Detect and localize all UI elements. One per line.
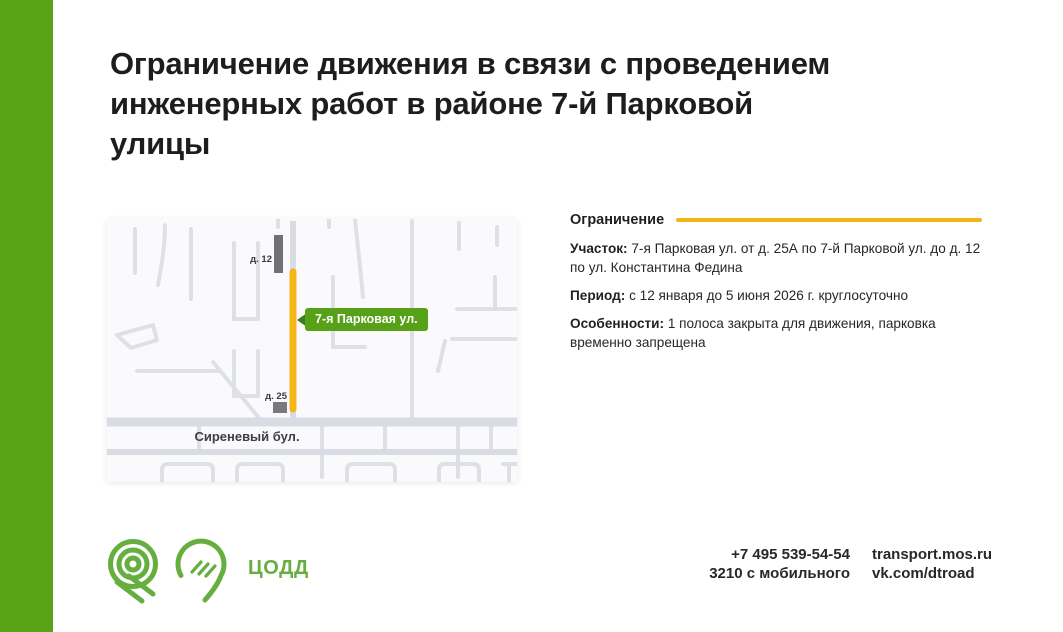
info-heading: Ограничение [570,212,664,228]
info-row-features-label: Особенности: [570,316,664,331]
info-heading-row: Ограничение [570,212,982,228]
infographic-poster: Ограничение движения в связи с проведени… [0,0,1063,632]
street-callout: 7-я Парковая ул. [297,308,428,331]
building-12-label: д. 12 [250,254,272,265]
org-name-label: ЦОДД [248,557,309,580]
social-text: vk.com/dtroad [872,564,992,583]
street-callout-label: 7-я Парковая ул. [305,308,428,331]
title-line-3: улицы [110,124,990,164]
contact-links: transport.mos.ru vk.com/dtroad [872,545,992,583]
boulevard-label: Сиреневый бул. [194,429,299,444]
map-graphic: д. 12 д. 25 Сиреневый бул. [107,219,517,482]
title-line-2: инженерных работ в районе 7-й Парковой [110,84,990,124]
info-row-period: Период: с 12 января до 5 июня 2026 г. кр… [570,286,982,305]
codd-logo-icon [178,541,224,600]
info-row-section: Участок: 7-я Парковая ул. от д. 25А по 7… [570,239,982,277]
yellow-rule [676,218,982,222]
page-title: Ограничение движения в связи с проведени… [110,44,990,164]
logos-graphic [106,538,241,604]
info-row-features: Особенности: 1 полоса закрыта для движен… [570,314,982,352]
moscow-transport-logo-icon [111,542,156,602]
info-row-section-label: Участок: [570,241,628,256]
left-accent-bar [0,0,53,632]
title-line-1: Ограничение движения в связи с проведени… [110,44,990,84]
building-12-marker [274,235,283,273]
phone-main: +7 495 539-54-54 [650,545,850,564]
building-25-label: д. 25 [265,391,288,402]
footer-logos [106,538,241,609]
info-row-period-text: с 12 января до 5 июня 2026 г. круглосуто… [629,288,908,303]
map-minor-roads [117,219,517,481]
building-25-marker [273,402,287,413]
schematic-map: д. 12 д. 25 Сиреневый бул. 7-я Парковая … [107,219,517,482]
restriction-info-panel: Ограничение Участок: 7-я Парковая ул. от… [570,212,982,361]
info-row-section-text: 7-я Парковая ул. от д. 25А по 7-й Парков… [570,241,980,275]
phone-mobile: 3210 с мобильного [650,564,850,583]
info-row-period-label: Период: [570,288,625,303]
contact-phones: +7 495 539-54-54 3210 с мобильного [650,545,850,583]
website-text: transport.mos.ru [872,545,992,564]
